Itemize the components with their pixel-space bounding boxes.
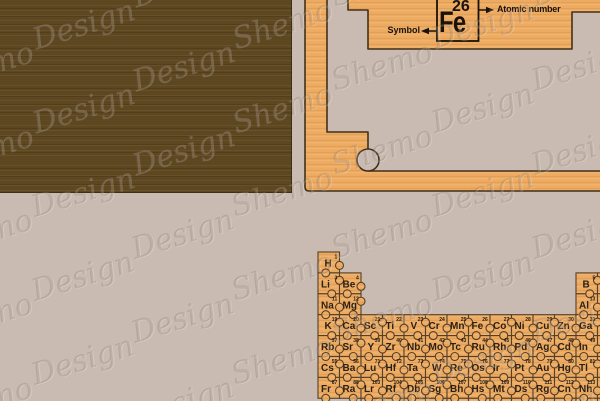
svg-text:108: 108 (479, 380, 488, 386)
svg-text:Tl: Tl (579, 363, 588, 374)
svg-text:Hf: Hf (386, 363, 397, 374)
svg-text:73: 73 (418, 359, 424, 365)
laser-cut-design-preview: Fe 26 Symbol Atomic number H1Li3Be4B5C6N… (0, 0, 600, 401)
svg-text:45: 45 (504, 338, 510, 344)
svg-text:12: 12 (353, 296, 359, 302)
svg-text:49: 49 (590, 338, 596, 344)
svg-text:B: B (583, 279, 590, 290)
svg-text:56: 56 (353, 359, 359, 365)
svg-text:21: 21 (375, 317, 381, 323)
svg-text:11: 11 (332, 296, 338, 302)
svg-text:104: 104 (393, 380, 402, 386)
svg-text:41: 41 (418, 338, 424, 344)
svg-text:43: 43 (461, 338, 467, 344)
svg-text:72: 72 (396, 359, 402, 365)
svg-text:112: 112 (566, 380, 574, 386)
svg-text:77: 77 (504, 359, 510, 365)
svg-text:22: 22 (396, 317, 402, 323)
svg-text:13: 13 (590, 296, 596, 302)
svg-text:31: 31 (590, 317, 596, 323)
svg-text:27: 27 (504, 317, 510, 323)
svg-text:25: 25 (461, 317, 467, 323)
svg-text:109: 109 (501, 380, 510, 386)
svg-text:55: 55 (332, 359, 338, 365)
svg-text:1: 1 (335, 255, 338, 261)
svg-text:26: 26 (482, 317, 488, 323)
periodic-table-puzzle: H1Li3Be4B5C6Na11Mg12Al13Si14K19Ca20Sc21T… (0, 0, 600, 401)
svg-text:H: H (325, 259, 332, 270)
svg-text:111: 111 (545, 380, 553, 386)
svg-text:44: 44 (482, 338, 488, 344)
svg-text:103: 103 (372, 380, 381, 386)
svg-text:Li: Li (321, 279, 330, 290)
svg-text:In: In (579, 342, 588, 353)
svg-text:80: 80 (568, 359, 574, 365)
svg-text:107: 107 (458, 380, 467, 386)
svg-text:19: 19 (332, 317, 338, 323)
svg-text:24: 24 (439, 317, 445, 323)
svg-text:Cr: Cr (429, 321, 440, 332)
svg-text:110: 110 (523, 380, 531, 386)
svg-text:76: 76 (482, 359, 488, 365)
svg-text:71: 71 (375, 359, 381, 365)
svg-text:29: 29 (547, 317, 553, 323)
svg-text:113: 113 (587, 380, 595, 386)
svg-text:42: 42 (439, 338, 445, 344)
svg-text:Sr: Sr (343, 342, 354, 353)
svg-text:28: 28 (525, 317, 531, 323)
svg-text:Zr: Zr (386, 342, 396, 353)
svg-text:105: 105 (415, 380, 424, 386)
svg-text:Y: Y (368, 342, 375, 353)
svg-text:20: 20 (353, 317, 359, 323)
svg-text:Al: Al (579, 300, 589, 311)
svg-text:5: 5 (593, 275, 596, 281)
svg-text:37: 37 (332, 338, 338, 344)
svg-text:75: 75 (461, 359, 467, 365)
svg-text:88: 88 (353, 380, 359, 386)
svg-text:87: 87 (332, 380, 338, 386)
svg-text:Tc: Tc (450, 342, 461, 353)
svg-text:Ni: Ni (515, 321, 525, 332)
svg-text:74: 74 (439, 359, 445, 365)
svg-text:30: 30 (568, 317, 574, 323)
svg-text:48: 48 (568, 338, 574, 344)
svg-text:46: 46 (525, 338, 531, 344)
svg-text:40: 40 (396, 338, 402, 344)
svg-text:Ta: Ta (407, 363, 418, 374)
svg-text:47: 47 (547, 338, 553, 344)
svg-text:3: 3 (335, 275, 338, 281)
svg-text:23: 23 (418, 317, 424, 323)
svg-text:79: 79 (547, 359, 553, 365)
svg-text:Ir: Ir (493, 363, 500, 374)
svg-text:V: V (411, 321, 418, 332)
svg-text:78: 78 (525, 359, 531, 365)
svg-text:39: 39 (375, 338, 381, 344)
svg-text:4: 4 (356, 275, 359, 281)
svg-text:Pt: Pt (515, 363, 526, 374)
svg-text:106: 106 (436, 380, 445, 386)
svg-text:Be: Be (343, 279, 356, 290)
svg-text:38: 38 (353, 338, 359, 344)
svg-text:Fr: Fr (321, 384, 331, 395)
svg-text:Ti: Ti (386, 321, 395, 332)
svg-text:81: 81 (590, 359, 596, 365)
